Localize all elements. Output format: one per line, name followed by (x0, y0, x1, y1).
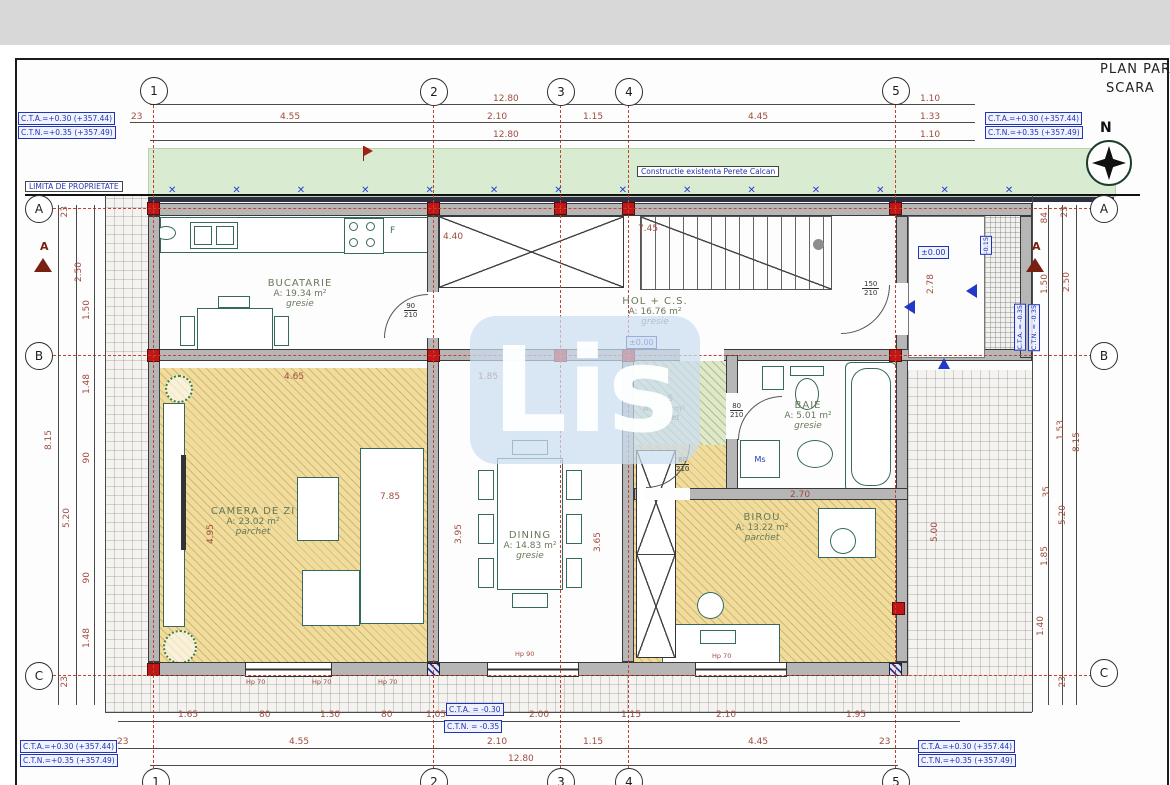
floor-plan-canvas: PLAN PAR SCARA Constructie existenta Per… (0, 0, 1170, 785)
dim-line (118, 721, 960, 722)
dim: 12.80 (508, 754, 534, 764)
toilet-tank (790, 366, 824, 376)
washing-machine-label: Ms (754, 455, 765, 464)
dim: 23 (60, 676, 70, 687)
room-floor: parchet (712, 533, 812, 543)
dim: 2.10 (487, 737, 507, 747)
door-hall-height: 210 (864, 289, 877, 297)
dim-line (130, 122, 975, 123)
burner (366, 222, 375, 231)
grid-axis-1: 1 (140, 77, 168, 105)
grid-label: C (1100, 666, 1108, 680)
chair (478, 558, 494, 588)
room-name: BUCATARIE (240, 278, 360, 289)
room-bucatarie: BUCATARIE A: 19.34 m² gresie (240, 278, 360, 309)
small-sink (762, 366, 784, 390)
level-box-br-cta: C.T.A.=+0.30 (+357.44) (918, 740, 1015, 753)
dim: 4.40 (443, 232, 463, 242)
grid-axis-b-right: B (1090, 342, 1118, 370)
dim-line-v (94, 205, 95, 705)
grid-label: 4 (625, 85, 633, 99)
section-arrow-left (34, 258, 52, 272)
grid-label: 5 (892, 84, 900, 98)
window-label: Hp 90 (515, 650, 534, 658)
dim: 23 (60, 206, 70, 217)
chair (478, 470, 494, 500)
dim: 2.78 (926, 274, 936, 294)
bathtub-inner (851, 368, 891, 486)
level-bottom-cta: C.T.A. = -0.30 (446, 703, 504, 716)
dim: 2.00 (529, 710, 549, 720)
dim: 84 (1040, 212, 1050, 223)
dim: 2.50 (1062, 272, 1072, 292)
room-floor: parchet (188, 527, 318, 537)
dim: 3.95 (454, 524, 464, 544)
dim: 1.10 (920, 94, 940, 104)
dim: 8.15 (1072, 432, 1082, 452)
dim: 2.50 (74, 262, 84, 282)
grid-label: 3 (557, 775, 565, 785)
top-gray-bar (0, 0, 1170, 45)
grid-axis-a: A (25, 195, 53, 223)
plant (165, 375, 193, 403)
sofa-main (360, 448, 424, 624)
level-box-bl-cta: C.T.A.=+0.30 (+357.44) (20, 740, 117, 753)
grid-axis-c: C (25, 662, 53, 690)
dim: 1.50 (1040, 274, 1050, 294)
office-chair (830, 528, 856, 554)
grid-label: 2 (430, 775, 438, 785)
kitchen-table (197, 308, 273, 354)
entrance-arrow-2 (966, 284, 977, 298)
dim-line-v (58, 205, 59, 705)
room-camera-de-zi: CAMERA DE ZI A: 23.02 m² parchet (188, 506, 318, 537)
window-label: Hp 70 (312, 678, 331, 686)
dim: 23 (1058, 676, 1068, 687)
entrance-arrow-up (938, 358, 950, 369)
boundary-x-marks: ✕✕✕✕✕✕✕✕✕✕✕✕✕✕ (168, 185, 1108, 199)
chair (180, 316, 195, 346)
chair (566, 558, 582, 588)
level-box-tr-ctn: C.T.N.=+0.35 (+357.49) (985, 126, 1083, 139)
desk-monitor (700, 630, 736, 644)
sofa-chaise (302, 570, 360, 626)
dim: 1.15 (583, 737, 603, 747)
door-tag-kitchen: 90 210 (404, 302, 417, 319)
pedestal-sink (797, 440, 833, 468)
section-label-left: A (40, 240, 49, 253)
room-area: A: 23.02 m² (188, 517, 318, 527)
entrance-arrow-1 (904, 300, 915, 314)
pavement-bottom (105, 676, 1032, 712)
dim: 5.00 (930, 522, 940, 542)
room-floor: gresie (470, 551, 590, 561)
dim: 1.85 (1040, 546, 1050, 566)
dim: 1.40 (1036, 616, 1046, 636)
dim: 23 (117, 737, 128, 747)
axis-1-line (153, 105, 154, 783)
dim: 4.55 (289, 737, 309, 747)
burner (349, 222, 358, 231)
grid-label: C (35, 669, 43, 683)
axis-c-line (48, 675, 1092, 676)
dim: 4.55 (280, 112, 300, 122)
sink-bowl-left (194, 226, 212, 245)
plan-title-line1: PLAN PAR (1100, 60, 1170, 79)
grid-label: A (35, 202, 43, 216)
axis-a-line (48, 208, 1092, 209)
plan-title: PLAN PAR SCARA (1100, 60, 1170, 98)
dim: 1.30 (320, 710, 340, 720)
grid-axis-5: 5 (882, 77, 910, 105)
level-box-tl-cta: C.T.A.=+0.30 (+357.44) (18, 112, 115, 125)
dim: 7.85 (380, 492, 400, 502)
column (892, 602, 905, 615)
room-name: BAIE (770, 400, 846, 411)
grid-label: 4 (625, 775, 633, 785)
window-label: Hp 70 (712, 652, 731, 660)
door-kitchen-width: 90 (404, 302, 417, 311)
grid-label: A (1100, 202, 1108, 216)
dim-line (150, 140, 975, 141)
washing-machine: Ms (740, 440, 780, 478)
dim: 23 (879, 737, 890, 747)
dim: 1.15 (621, 710, 641, 720)
grid-label: 1 (150, 84, 158, 98)
wall-left (148, 216, 160, 662)
watermark: Lis (470, 316, 700, 464)
dim: 12.80 (493, 130, 519, 140)
dim: 1.48 (82, 628, 92, 648)
grid-label: 5 (892, 775, 900, 785)
tv-screen (181, 455, 186, 550)
apron-left-edge (105, 195, 106, 712)
grid-axis-3: 3 (547, 78, 575, 106)
plant (163, 630, 197, 664)
dim: 12.80 (493, 94, 519, 104)
level-box-bl-ctn: C.T.N.=+0.35 (+357.49) (20, 754, 118, 767)
dim: 90 (82, 572, 92, 583)
dim: 2.10 (716, 710, 736, 720)
pavement-left (105, 195, 148, 712)
level-minus-015: -0.15 (980, 236, 992, 255)
flag-marker (364, 146, 373, 156)
dim: 1.15 (583, 112, 603, 122)
room-area: A: 19.34 m² (240, 289, 360, 299)
dim: 80 (381, 710, 392, 720)
dim: 4.45 (748, 112, 768, 122)
dim: 90 (82, 452, 92, 463)
property-line-label: LIMITA DE PROPRIETATE (25, 181, 123, 192)
axis-5-line (895, 105, 896, 783)
axis-2-line (433, 105, 434, 783)
grid-axis-4: 4 (615, 78, 643, 106)
level-box-tr-cta: C.T.A.=+0.30 (+357.44) (985, 112, 1082, 125)
dim: 1.33 (920, 112, 940, 122)
room-floor: gresie (240, 299, 360, 309)
apron-bottom-edge (105, 712, 1032, 713)
stair-post (813, 239, 824, 250)
dim: 5.20 (1058, 505, 1068, 525)
dim-line (118, 748, 960, 749)
grid-axis-c-right: C (1090, 659, 1118, 687)
terrace-right (908, 370, 1032, 676)
room-area: A: 13.22 m² (712, 523, 812, 533)
door-baie-width: 80 (730, 402, 743, 411)
burner (366, 238, 375, 247)
door-tag-baie: 80 210 (730, 402, 743, 419)
section-arrow-right (1026, 258, 1044, 272)
dim: 1.95 (846, 710, 866, 720)
dim: 1.48 (82, 374, 92, 394)
dim: 35 (1042, 486, 1052, 497)
grid-label: B (35, 349, 43, 363)
dim: 1.10 (920, 130, 940, 140)
chair (274, 316, 289, 346)
chair (512, 593, 548, 608)
north-compass-icon (1086, 140, 1132, 186)
level-box-tl-ctn: C.T.N.=+0.35 (+357.49) (18, 126, 116, 139)
apron-right-edge (1032, 195, 1033, 712)
dim: 1.50 (82, 300, 92, 320)
door-baie-height: 210 (730, 411, 743, 419)
grid-label: 1 (152, 775, 160, 785)
dining-table (497, 458, 563, 590)
north-label: N (1100, 120, 1112, 136)
opening-sas-birou (644, 488, 690, 500)
room-area: A: 5.01 m² (770, 411, 846, 421)
room-baie: BAIE A: 5.01 m² gresie (770, 400, 846, 431)
grid-label: 2 (430, 85, 438, 99)
fridge-label: F (390, 226, 395, 236)
grid-label: 3 (557, 85, 565, 99)
grid-axis-a-right: A (1090, 195, 1118, 223)
window-label: Hp 70 (246, 678, 265, 686)
level-right-cta: C.T.A. = -0.35 (1014, 304, 1026, 351)
room-birou: BIROU A: 13.22 m² parchet (712, 512, 812, 543)
door-kitchen-height: 210 (404, 311, 417, 319)
room-dining: DINING A: 14.83 m² gresie (470, 530, 590, 561)
door-sas-height: 210 (676, 465, 689, 473)
door-hall-width: 150 (862, 280, 879, 289)
room-area: A: 14.83 m² (470, 541, 590, 551)
dim: 4.45 (748, 737, 768, 747)
grid-axis-b: B (25, 342, 53, 370)
dim-line (150, 765, 898, 766)
dim: 1.53 (1056, 420, 1066, 440)
chair (566, 470, 582, 500)
door-tag-entrance: 150 210 (862, 280, 879, 297)
level-right-ctn: C.T.N. = -0.35 (1028, 304, 1040, 351)
burner (349, 238, 358, 247)
dim: 23 (131, 112, 142, 122)
existing-wall-label: Constructie existenta Perete Calcan (637, 166, 779, 177)
dim-line-v (1076, 205, 1077, 705)
dim: 23 (1060, 206, 1070, 217)
room-name: HOL + C.S. (600, 296, 710, 307)
grid-axis-2: 2 (420, 78, 448, 106)
void-x-box (439, 216, 624, 288)
window-label: Hp 70 (378, 678, 397, 686)
staircase (640, 216, 832, 290)
dim: 1.05 (426, 710, 446, 720)
dim: 1.65 (178, 710, 198, 720)
dim: 2.10 (487, 112, 507, 122)
compass-star (1092, 146, 1126, 180)
sink-bowl-right (216, 226, 234, 245)
dim: 4.65 (284, 372, 304, 382)
desk-chair (697, 592, 724, 619)
dim: 7.45 (638, 224, 658, 234)
shaft-x-lower (637, 554, 675, 658)
plan-title-line2: SCARA (1100, 79, 1170, 98)
level-porch: ±0.00 (918, 246, 949, 259)
section-label-right: A (1032, 240, 1041, 253)
dim: 5.20 (62, 508, 72, 528)
room-name: DINING (470, 530, 590, 541)
level-bottom-ctn: C.T.N. = -0.35 (444, 720, 502, 733)
grid-label: B (1100, 349, 1108, 363)
room-floor: gresie (770, 421, 846, 431)
room-name: BIROU (712, 512, 812, 523)
room-name: CAMERA DE ZI (188, 506, 318, 517)
dim: 8.15 (44, 430, 54, 450)
level-box-br-ctn: C.T.N.=+0.35 (+357.49) (918, 754, 1016, 767)
dim: 3.65 (593, 532, 603, 552)
dim: 2.70 (790, 490, 810, 500)
dim: 80 (259, 710, 270, 720)
